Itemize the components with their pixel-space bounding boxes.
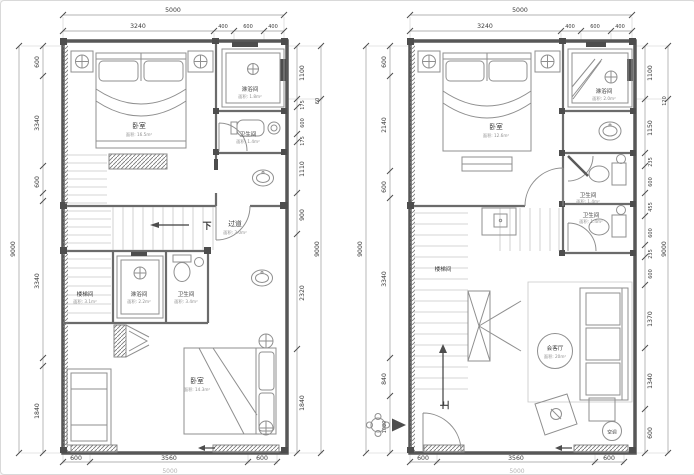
dim-label: 3340: [34, 273, 41, 289]
dim-left-total: 9000: [10, 241, 17, 257]
corridor-area: 面积: 3.0m²: [223, 229, 247, 236]
living-label: 会客厅: [547, 344, 564, 352]
room-labels: 卧室 面积: 12.6m² 淋浴间 面积: 2.0m² 卫生间 面积: 1.4m…: [435, 87, 617, 436]
dim-bottom-total: 5000: [509, 468, 524, 474]
dim-label: 3240: [477, 23, 493, 30]
dim-label: 3340: [34, 115, 41, 131]
bedroom-label: 卧室: [489, 122, 503, 131]
shower-mid-label: 淋浴间: [131, 290, 148, 298]
dim-label: 600: [603, 455, 615, 462]
dim-label: 1110: [299, 161, 306, 177]
dim-label: 3340: [381, 271, 388, 287]
dim-label: 600: [648, 177, 654, 187]
walls: [60, 38, 288, 453]
bedroom-bottom-area: 面积: 14.3m²: [184, 386, 211, 393]
dim-top-total: 5000: [512, 7, 528, 14]
dim-label: 1100: [647, 65, 654, 81]
dim-label: 1340: [647, 373, 654, 389]
dim-label: 1370: [647, 311, 654, 327]
corridor-label: 过道: [228, 219, 242, 228]
sofa: [580, 288, 628, 400]
dim-label: 3240: [130, 23, 146, 30]
dim-label: 600: [647, 427, 654, 439]
dim-label: 1100: [299, 65, 306, 81]
dim-label: 175: [300, 136, 306, 146]
upper-floor-plan: 5000 3240 400 600 400 9000 600 3340 600 …: [1, 1, 348, 474]
shower-mid-fixtures: [117, 252, 163, 318]
bed: [418, 51, 560, 171]
dim-label: 120: [662, 96, 668, 106]
bottom-hatches: [424, 445, 628, 452]
floorplan-canvas: 5000 3240 400 600 400 9000 600 3340 600 …: [0, 0, 694, 475]
toilet-2-area: 面积: 1.4m²: [579, 218, 603, 225]
stairs: [414, 208, 559, 409]
dim-bottom-total: 5000: [162, 468, 177, 474]
dim-label: 400: [565, 24, 575, 30]
dim-label: 600: [648, 269, 654, 279]
bedroom-label: 卧室: [132, 121, 146, 130]
dim-label: 600: [590, 24, 600, 30]
lower-floor-plan: 5000 3240 400 600 400 9000 600 2140 600 …: [348, 1, 694, 474]
up-label: 上: [439, 400, 451, 409]
toilet-door-leaf: [568, 156, 588, 176]
dim-label: 2320: [299, 285, 306, 301]
dim-label: 1150: [647, 120, 654, 136]
bedroom-area: 面积: 12.6m²: [483, 132, 510, 139]
shower-label: 淋浴间: [596, 87, 613, 95]
dim-label: 900: [299, 209, 306, 221]
dim-label: 60: [315, 98, 321, 104]
dim-label: 600: [300, 118, 306, 128]
toilet-area: 面积: 1.4m²: [236, 138, 260, 145]
wardrobe: [67, 369, 111, 445]
living-area: 面积: 20m²: [544, 353, 567, 360]
dim-label: 600: [256, 455, 268, 462]
toilet-1-label: 卫生间: [580, 191, 597, 199]
ac-label: 空调: [607, 429, 617, 436]
dim-label: 600: [381, 56, 388, 68]
dim-top-total: 5000: [165, 7, 181, 14]
dim-right-total: 9000: [661, 241, 668, 257]
dim-label: 400: [268, 24, 278, 30]
shower-label: 淋浴间: [242, 85, 259, 93]
dim-label: 1840: [299, 395, 306, 411]
room-labels: 卧室 面积: 16.5m² 淋浴间 面积: 1.8m² 卫生间 面积: 1.4m…: [73, 85, 262, 393]
shower-area: 面积: 1.8m²: [238, 93, 262, 100]
dim-label: 600: [34, 176, 41, 188]
toilet-mid-fixtures: [173, 255, 204, 282]
dim-label: 175: [300, 100, 306, 110]
toilet-1-fixtures: [589, 155, 626, 186]
toilet-1-area: 面积: 1.4m²: [576, 198, 600, 205]
basin: [253, 170, 274, 186]
dim-label: 455: [648, 202, 654, 212]
dim-label: 600: [648, 228, 654, 238]
toilet-label: 卫生间: [240, 130, 257, 138]
bottom-hatches: [71, 445, 279, 452]
dim-label: 400: [218, 24, 228, 30]
dim-label: 3560: [508, 455, 524, 462]
stairwell-label: 楼梯间: [435, 265, 452, 273]
down-label: 下: [202, 221, 211, 232]
dim-label: 2140: [381, 117, 388, 133]
dim-label: 400: [615, 24, 625, 30]
stairwell-label: 楼梯间: [77, 290, 94, 298]
bedroom-area: 面积: 16.5m²: [126, 131, 153, 138]
toilet-mid-area: 面积: 3.4m²: [174, 298, 198, 305]
dim-label: 1840: [34, 403, 41, 419]
dim-right-total: 9000: [314, 241, 321, 257]
shower-area: 面积: 2.0m²: [592, 95, 616, 102]
shower-mid-area: 面积: 2.2m²: [127, 298, 151, 305]
stairwell-area: 面积: 3.1m²: [73, 298, 97, 305]
dim-label: 840: [381, 373, 388, 385]
dim-label: 3560: [161, 455, 177, 462]
ottoman-chair: [535, 394, 577, 435]
dim-label: 235: [648, 157, 654, 167]
dim-left-total: 9000: [357, 241, 364, 257]
dim-label: 600: [243, 24, 253, 30]
dim-label: 600: [70, 455, 82, 462]
basin: [599, 122, 621, 140]
dim-label: 235: [648, 249, 654, 259]
basin: [252, 270, 273, 286]
toilet-2-label: 卫生间: [583, 211, 600, 219]
dim-label: 600: [381, 181, 388, 193]
toilet-mid-label: 卫生间: [178, 290, 195, 298]
dim-label: 600: [34, 56, 41, 68]
dimension-labels: 5000 3240 400 600 400 9000 600 2140 600 …: [357, 7, 668, 474]
dim-label: 600: [417, 455, 429, 462]
side-table: [589, 398, 615, 421]
bedroom-bottom-label: 卧室: [190, 376, 204, 385]
